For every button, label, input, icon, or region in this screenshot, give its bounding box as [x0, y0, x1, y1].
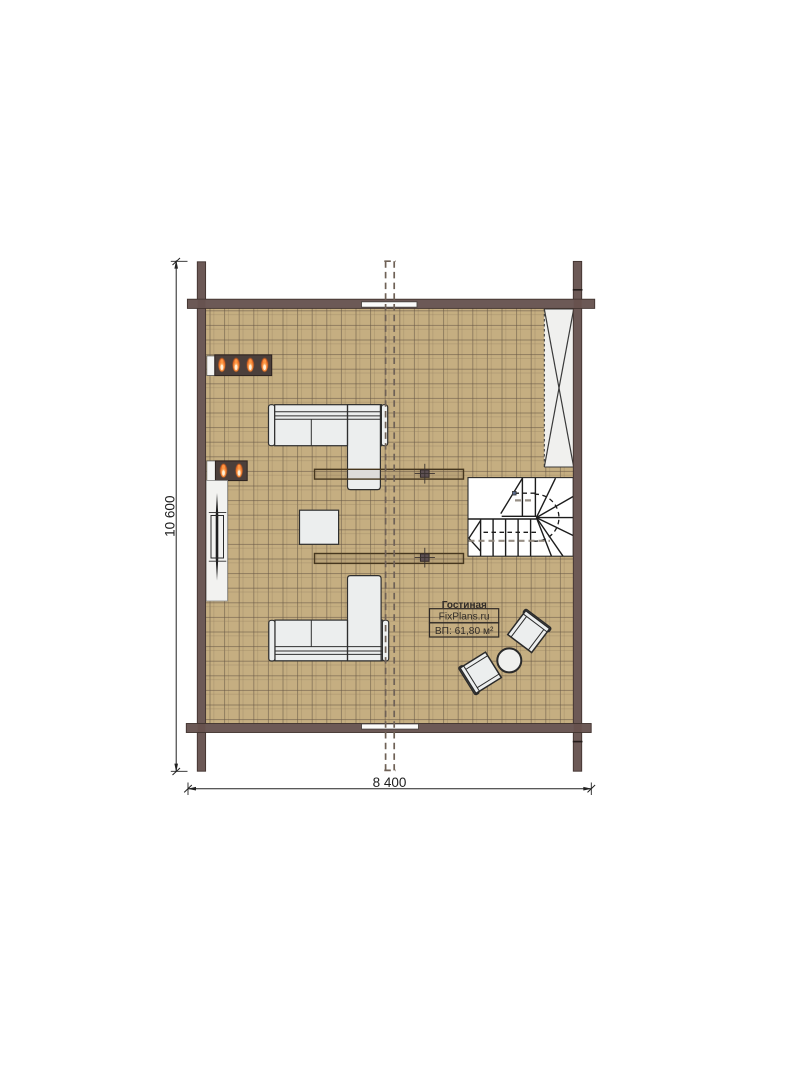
svg-text:8 400: 8 400 [373, 775, 407, 790]
svg-text:FixPlans.ru: FixPlans.ru [439, 612, 490, 623]
svg-text:ВП: 61,80 м²: ВП: 61,80 м² [435, 626, 494, 637]
svg-text:10 600: 10 600 [163, 496, 178, 537]
